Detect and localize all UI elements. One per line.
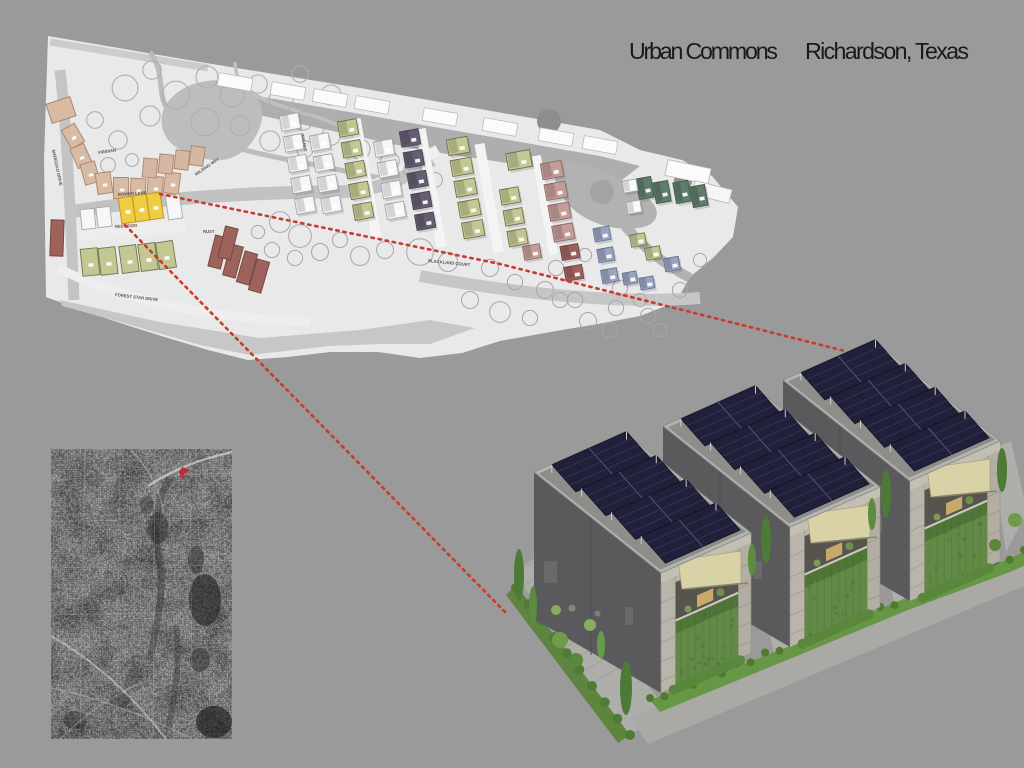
- svg-text:RUST: RUST: [203, 229, 215, 234]
- svg-text:Urban Commons: Urban Commons: [629, 38, 778, 64]
- svg-text:Richardson, Texas: Richardson, Texas: [805, 38, 969, 64]
